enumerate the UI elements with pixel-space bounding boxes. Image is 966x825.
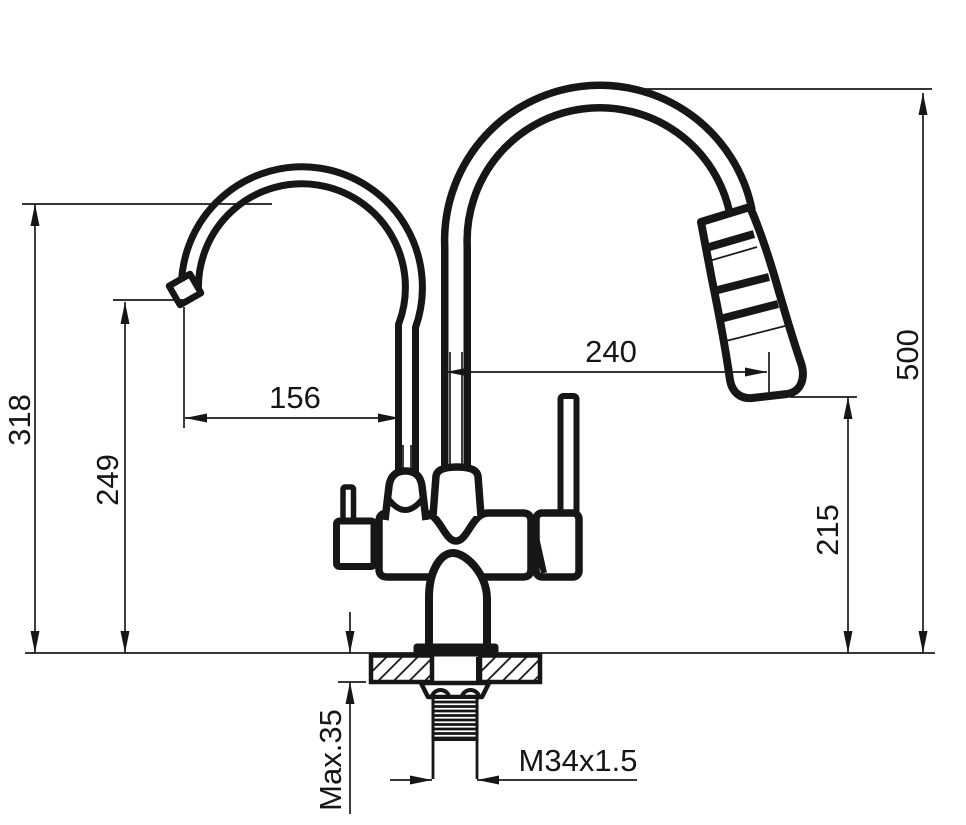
arrowhead-right: [410, 776, 432, 785]
dimension-spray-outlet-height: 215: [790, 397, 857, 653]
filter-lever-base: [337, 521, 375, 567]
dimension-small-spout-reach: 156: [184, 307, 400, 428]
countertop-section-left: [371, 656, 432, 683]
dimension-label: Max.35: [313, 709, 348, 811]
dimension-label: 249: [90, 454, 125, 506]
dimension-label: M34x1.5: [519, 743, 638, 778]
dimension-small-spout-top-height: 318: [2, 204, 272, 653]
dimension-label: 318: [2, 394, 37, 446]
arrowhead-up: [919, 93, 928, 115]
arrowhead-down: [919, 631, 928, 653]
dimension-label: 156: [269, 380, 321, 415]
body-column: [429, 553, 487, 650]
shank-threads: [434, 702, 477, 738]
arrowhead-down: [121, 631, 130, 653]
arrowhead-up: [121, 302, 130, 324]
dimension-label: 215: [810, 504, 845, 556]
small-spout-tube-outer: [190, 175, 414, 496]
arrowhead-down: [844, 631, 853, 653]
dimension-label: 500: [890, 329, 925, 381]
arrowhead-up: [346, 682, 355, 704]
arrowhead-left: [185, 414, 207, 423]
arrowhead-down: [31, 631, 40, 653]
dimension-small-spout-outlet-height: 249: [90, 300, 184, 653]
countertop-section-right: [480, 656, 540, 683]
dimension-label: 240: [585, 334, 637, 369]
arrowhead-up: [31, 204, 40, 226]
main-spout-socket: [433, 467, 481, 516]
dimension-mounting-thread: M34x1.5: [390, 743, 637, 785]
arrowhead-left: [477, 776, 499, 785]
faucet-dimension-drawing: 318 249 156 240 500 215: [0, 0, 966, 825]
arrowhead-up: [844, 397, 853, 419]
mixer-handle-lever: [561, 396, 577, 516]
faucet-outline: [169, 97, 803, 779]
dimension-max-deck-thickness: Max.35: [313, 612, 366, 814]
arrowhead-down: [346, 631, 355, 653]
main-spout-tube-outer: [456, 97, 741, 500]
technical-drawing-canvas: 318 249 156 240 500 215: [0, 0, 966, 825]
